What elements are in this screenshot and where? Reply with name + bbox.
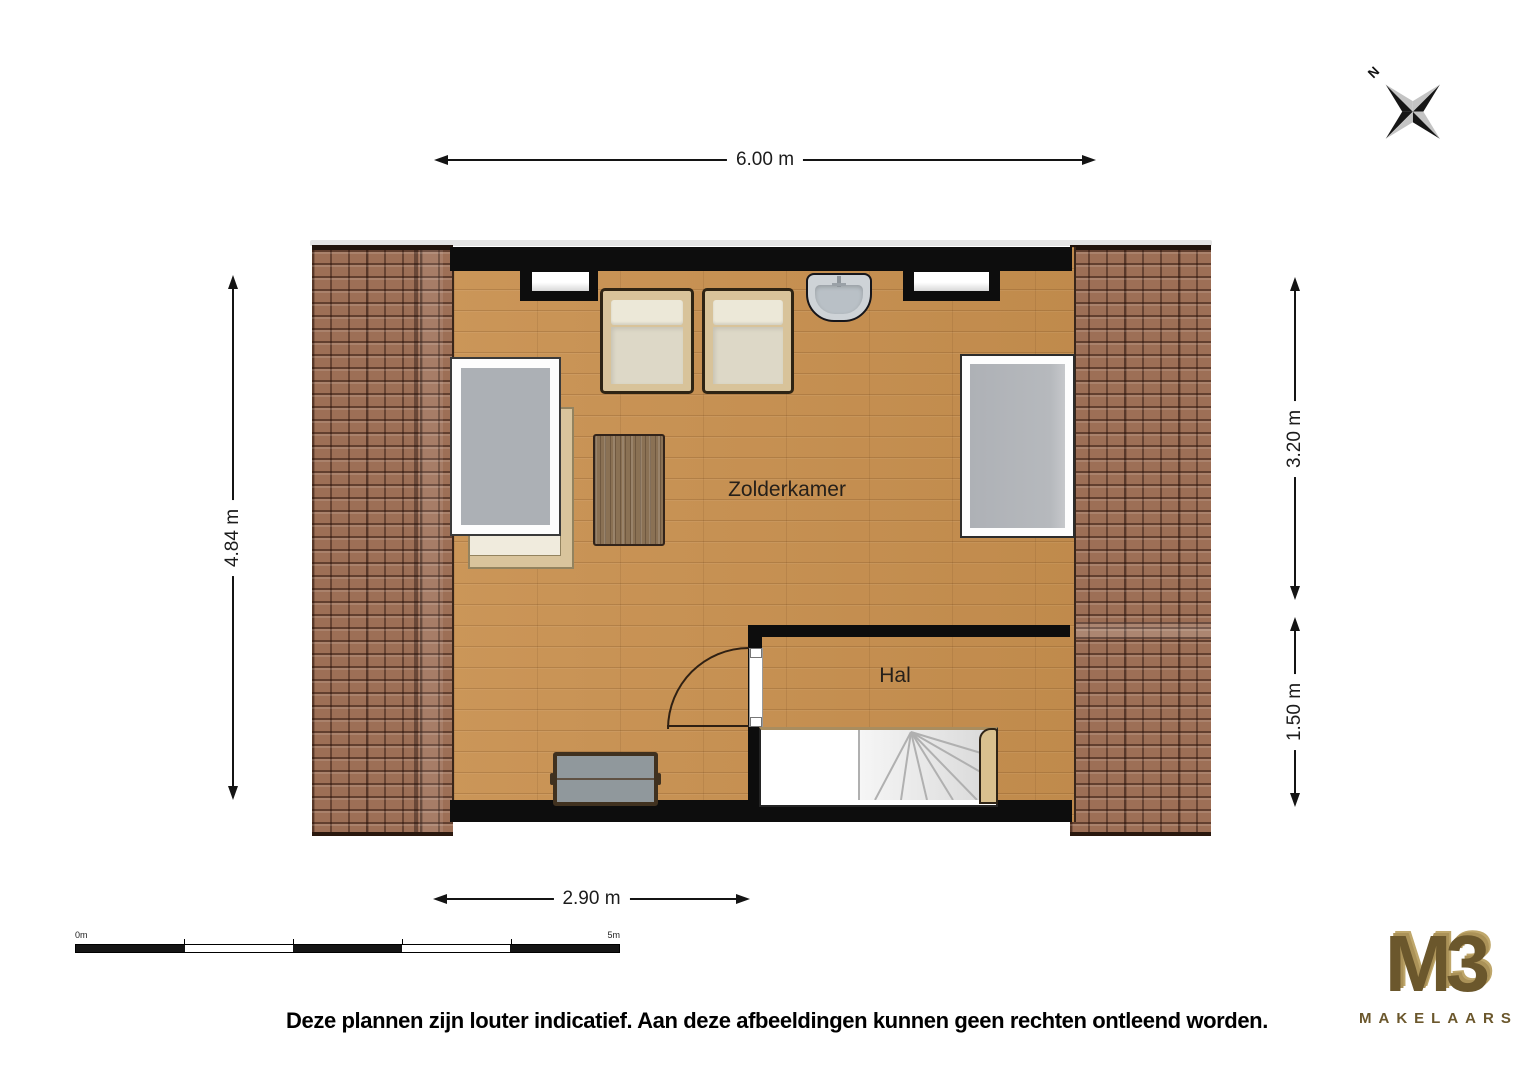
disclaimer-text: Deze plannen zijn louter indicatief. Aan… [247,1008,1307,1034]
scale-bar-segments [75,944,620,953]
scale-bar: 0m 5m [75,930,620,956]
arrowhead-right [736,894,750,904]
arrowhead-up [1290,617,1300,631]
roof-window-left [450,357,561,536]
window-left [532,272,589,291]
storage-bench [553,752,658,806]
door-opening [749,648,763,727]
glass-pane [461,368,550,525]
winder-staircase [759,727,998,807]
stair-steps [761,730,992,800]
dimension-top: 6.00 m [434,149,1096,171]
dimension-right-bottom-label: 1.50 m [1284,674,1306,750]
window-right [914,272,989,291]
room-label-hal: Hal [855,664,935,688]
door-leaf [667,725,749,727]
stair-rail [979,728,998,804]
arrowhead-down [1290,793,1300,807]
logo-title: M3 [1352,928,1517,1000]
wash-basin [806,273,872,322]
arrowhead-down [1290,586,1300,600]
dimension-left: 4.84 m [222,275,244,800]
dimension-right-top-label: 3.20 m [1284,400,1306,476]
armchair-2 [702,288,794,394]
arrowhead-left [433,894,447,904]
arrowhead-left [434,155,448,165]
dimension-bottom: 2.90 m [433,888,750,910]
roof-left [312,245,453,836]
roof-window-right [960,354,1075,538]
compass-icon: N [1360,56,1456,152]
arrowhead-up [1290,277,1300,291]
chair-seat [713,327,783,384]
north-label: N [1365,64,1382,81]
basin [815,285,863,314]
armchair-1 [600,288,694,394]
wall-hall-horizontal [748,625,1070,637]
dimension-top-label: 6.00 m [727,149,803,171]
arrowhead-down [228,786,238,800]
chair-pillow [713,300,783,325]
dimension-left-label: 4.84 m [222,499,244,575]
roof-right [1070,245,1211,836]
coffee-table [593,434,665,546]
m3-logo: M3 MAKELAARS [1352,928,1517,1027]
scale-end-label: 5m [607,930,620,940]
logo-subtitle: MAKELAARS [1352,1010,1517,1027]
arrowhead-right [1082,155,1096,165]
chair-pillow [611,300,683,325]
arrowhead-up [228,275,238,289]
glass-pane [970,364,1065,528]
dimension-bottom-label: 2.90 m [553,888,629,910]
dimension-right-bottom: 1.50 m [1284,617,1306,807]
dimension-right-top: 3.20 m [1284,277,1306,600]
floorplan-canvas: N 6.00 m 4.84 m 3.20 m 1.50 m 2.90 m [0,0,1527,1080]
chair-seat [611,327,683,384]
room-label-zolderkamer: Zolderkamer [687,478,887,502]
scale-start-label: 0m [75,930,88,940]
